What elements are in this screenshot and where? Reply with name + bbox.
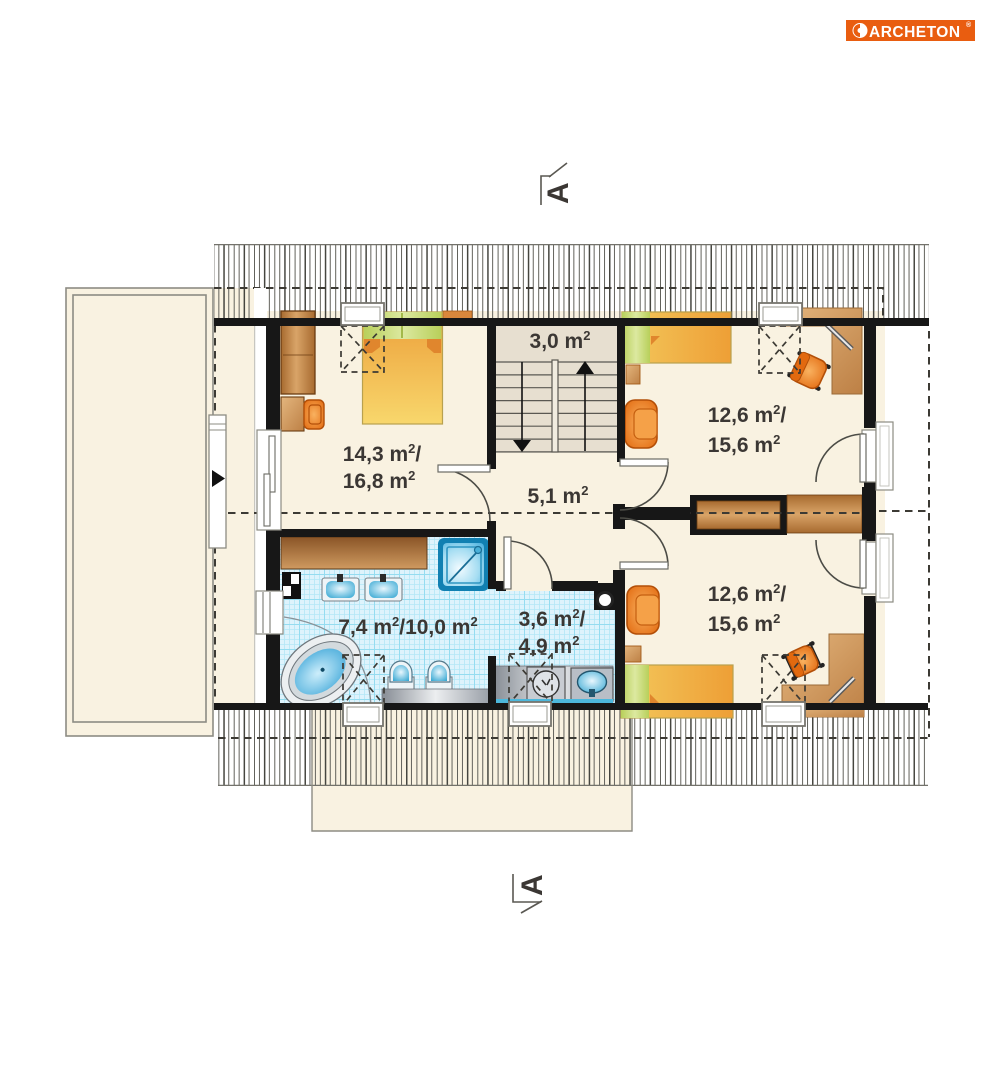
svg-text:4,9 m2: 4,9 m2 [519,633,580,658]
svg-text:15,6 m2: 15,6 m2 [708,611,781,636]
svg-text:5,1 m2: 5,1 m2 [528,483,589,508]
svg-text:15,6 m2: 15,6 m2 [708,432,781,457]
svg-text:®: ® [966,21,972,29]
svg-text:A: A [516,874,549,896]
svg-text:3,0 m2: 3,0 m2 [530,328,591,353]
svg-text:7,4 m2/10,0 m2: 7,4 m2/10,0 m2 [338,614,477,639]
svg-text:A: A [542,182,575,204]
svg-text:ARCHETON: ARCHETON [869,24,961,41]
svg-text:16,8 m2: 16,8 m2 [343,468,416,493]
